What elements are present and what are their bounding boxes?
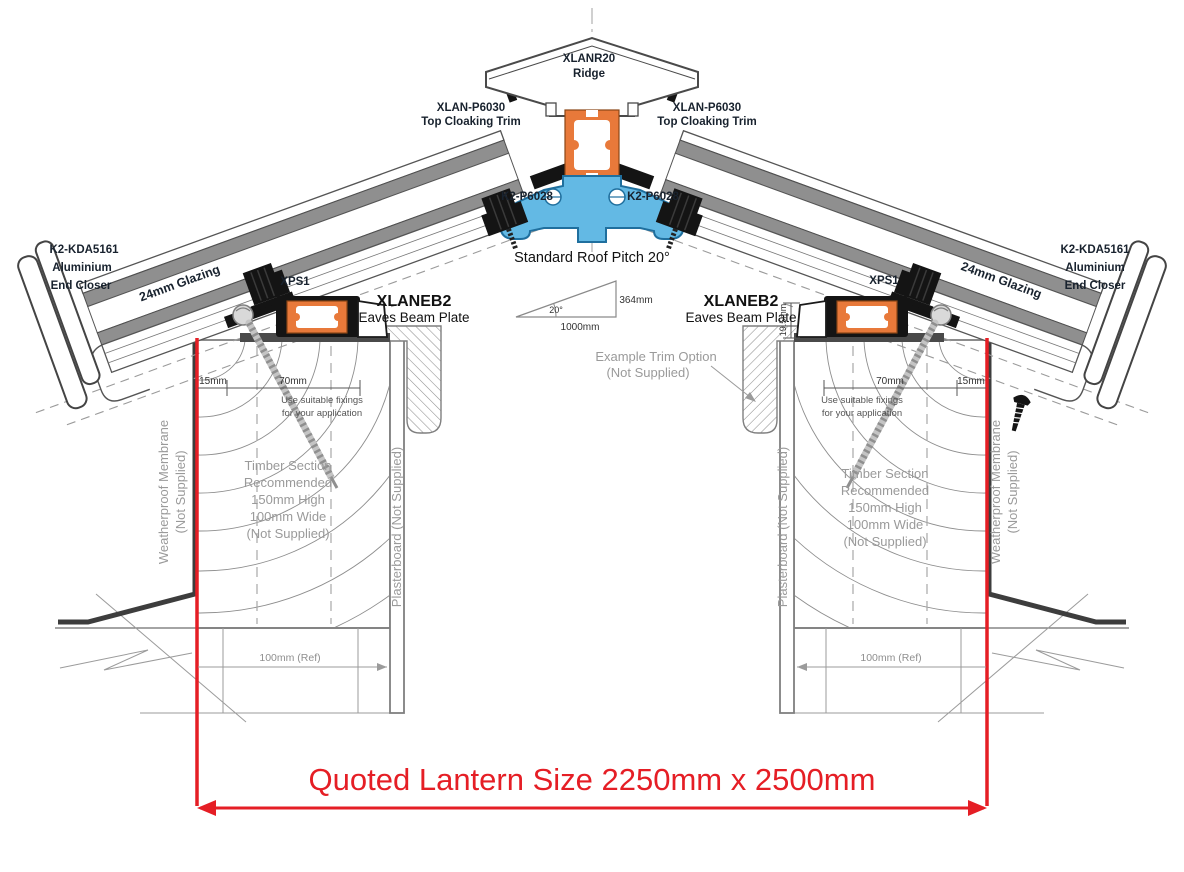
left-half-geometry (0, 50, 631, 806)
end-closer-part-left: K2-KDA5161 (49, 244, 119, 256)
plasterboard-note-left: Plasterboard (Not Supplied) (389, 447, 404, 607)
dim-15mm-left: 15mm (199, 376, 227, 387)
xps1-label-right: XPS1 (869, 275, 899, 287)
quoted-size-dimension (197, 800, 987, 816)
screw-icon (1005, 393, 1032, 433)
pitch-title: Standard Roof Pitch 20° (514, 250, 670, 266)
ref-100mm-left: 100mm (Ref) (259, 652, 320, 664)
glazing-bar-label-right: K2-P6028 (627, 191, 679, 203)
timber-note-right-1: Timber Section (842, 466, 929, 481)
timber-note-right-2: Recommended (841, 483, 929, 498)
timber-note-left-4: 100mm Wide (250, 509, 327, 524)
fixings-note-line2-left: for your application (282, 408, 362, 419)
membrane-note-line2-left: (Not Supplied) (173, 450, 188, 533)
cloaking-part-label-left: XLAN-P6030 (437, 102, 505, 114)
trim-option-line1: Example Trim Option (595, 349, 716, 364)
technical-drawing-canvas: XLANR20 Ridge XLAN-P6030 Top Cloaking Tr… (0, 0, 1184, 872)
end-closer-line2-left: End Closer (51, 280, 112, 292)
timber-note-right-3: 150mm High (848, 500, 922, 515)
eaves-beam-part-right: XLANEB2 (704, 293, 779, 310)
ridge-part-label: XLANR20 (563, 53, 615, 65)
glazing-bar-label-left: K2-P6028 (501, 191, 553, 203)
ref-100mm-right: 100mm (Ref) (860, 652, 921, 664)
ridge-profile (500, 176, 684, 242)
dim-19-5mm: 19.5mm (778, 304, 788, 337)
timber-note-left-1: Timber Section (245, 458, 332, 473)
membrane-note-line2-right: (Not Supplied) (1005, 450, 1020, 533)
end-closer-line2-right: End Closer (1065, 280, 1126, 292)
fixings-note-line2-right: for your application (822, 408, 902, 419)
end-closer-line1-right: Aluminium (1065, 262, 1124, 274)
break-symbol (60, 650, 192, 670)
xps1-label-left: XPS1 (280, 276, 310, 288)
pitch-run: 1000mm (561, 322, 600, 333)
eaves-beam-name-left: Eaves Beam Plate (358, 310, 469, 325)
timber-note-left-2: Recommended (244, 475, 332, 490)
membrane-note-line1-left: Weatherproof Membrane (156, 420, 171, 564)
cloaking-name-label-right: Top Cloaking Trim (657, 116, 756, 128)
timber-note-right-5: (Not Supplied) (843, 534, 926, 549)
timber-note-left-3: 150mm High (251, 492, 325, 507)
fixings-note-line1-left: Use suitable fixings (281, 395, 363, 406)
dim-15mm-right: 15mm (957, 376, 985, 387)
pitch-triangle (516, 281, 616, 317)
dim-70mm-right: 70mm (876, 376, 904, 387)
cloaking-name-label-left: Top Cloaking Trim (421, 116, 520, 128)
cloaking-part-label-right: XLAN-P6030 (673, 102, 741, 114)
ridge-name-label: Ridge (573, 68, 605, 80)
timber-note-right-4: 100mm Wide (847, 517, 924, 532)
roof-lantern-section-drawing: XLANR20 Ridge XLAN-P6030 Top Cloaking Tr… (0, 0, 1184, 872)
wall-ref-dimension (198, 663, 387, 671)
pitch-angle: 20° (549, 305, 563, 315)
quoted-size-label: Quoted Lantern Size 2250mm x 2500mm (309, 762, 876, 797)
end-closer-line1-left: Aluminium (52, 262, 111, 274)
timber-note-left-5: (Not Supplied) (246, 526, 329, 541)
eaves-beam-part-left: XLANEB2 (377, 293, 452, 310)
membrane-note-line1-right: Weatherproof Membrane (988, 420, 1003, 564)
right-half-geometry (553, 50, 1184, 806)
plasterboard-note-right: Plasterboard (Not Supplied) (775, 447, 790, 607)
pitch-rise: 364mm (619, 295, 652, 306)
dim-70mm-left: 70mm (279, 376, 307, 387)
fixings-note-line1-right: Use suitable fixings (821, 395, 903, 406)
trim-option-line2: (Not Supplied) (606, 365, 689, 380)
end-closer-part-right: K2-KDA5161 (1060, 244, 1130, 256)
